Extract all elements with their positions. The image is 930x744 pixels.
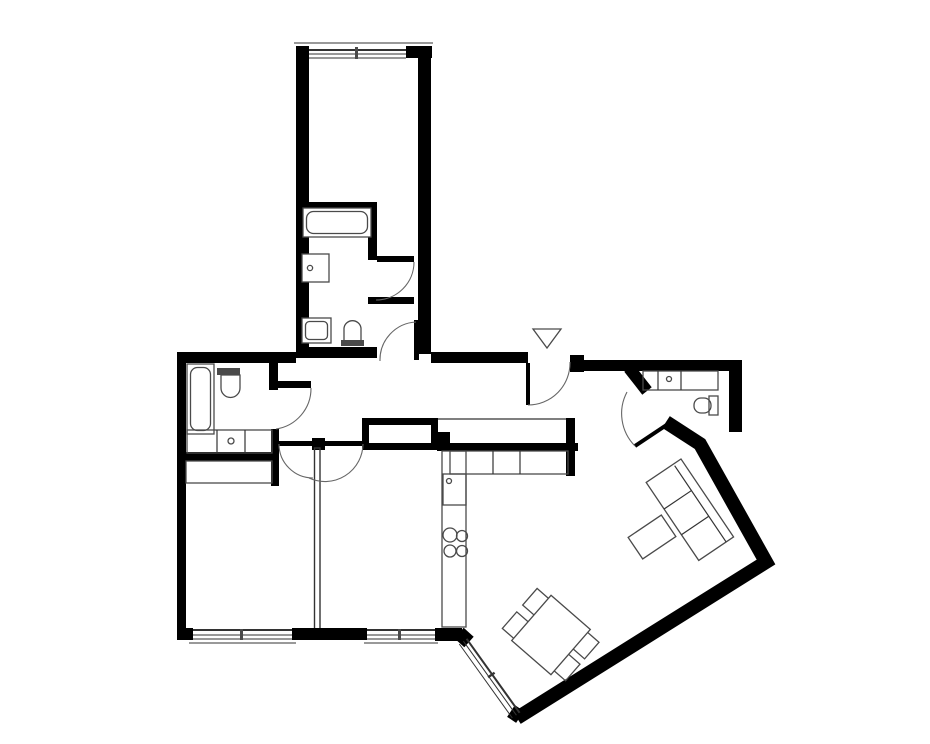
- wall: [570, 355, 584, 372]
- door-swing-arc: [622, 392, 635, 446]
- wall: [729, 360, 742, 432]
- door-swing-arc: [279, 444, 313, 478]
- entrance-arrow-icon: [533, 329, 561, 348]
- kitchen-cabinets: [450, 451, 568, 474]
- door-leaf: [414, 320, 419, 360]
- coffee-table: [628, 515, 676, 559]
- wall: [296, 46, 309, 355]
- door-swing-arc: [276, 388, 311, 429]
- stove-burners: [443, 528, 468, 557]
- wall: [584, 360, 742, 371]
- door-swing-arc: [528, 362, 570, 405]
- window-diagonal: [459, 639, 519, 718]
- wall: [177, 352, 186, 640]
- wall: [418, 58, 431, 354]
- kitchen-counter: [442, 451, 466, 627]
- wall: [431, 352, 528, 363]
- wall: [566, 418, 575, 476]
- wall-angled: [517, 422, 766, 718]
- toilet: [221, 375, 240, 398]
- floor-plan-page: [0, 0, 930, 744]
- bathtub: [303, 208, 371, 237]
- wall: [368, 297, 414, 304]
- room-ensuite-bathroom: [302, 208, 371, 346]
- faucet: [667, 377, 672, 382]
- floor-plan: [0, 0, 930, 744]
- wardrobe: [186, 461, 272, 483]
- wall-box-inner: [369, 425, 431, 443]
- door-leaf: [377, 256, 414, 262]
- wall: [269, 363, 278, 390]
- thin-partition-wall: [315, 448, 321, 630]
- wall: [177, 352, 296, 363]
- wall: [437, 443, 578, 451]
- toilet-tank: [217, 368, 240, 375]
- wall: [177, 628, 193, 640]
- door-leaf: [635, 424, 668, 446]
- door-leaf: [279, 441, 314, 446]
- washing-machine-door: [228, 438, 234, 444]
- door-leaf: [277, 381, 311, 388]
- wall: [406, 46, 432, 58]
- window: [189, 628, 296, 643]
- window: [364, 628, 438, 643]
- wall: [296, 347, 377, 358]
- faucet: [447, 479, 452, 484]
- door-swing-arc: [380, 322, 416, 361]
- kitchen-sink: [443, 474, 466, 505]
- room-right-bathroom: [643, 371, 718, 415]
- toilet: [344, 321, 361, 341]
- walls: [177, 46, 766, 718]
- door-leaf: [324, 441, 363, 446]
- washing-machine: [302, 254, 329, 282]
- door-swing-arc: [376, 262, 414, 300]
- entrance-door-leaf: [526, 363, 530, 405]
- wall: [292, 628, 367, 640]
- toilet-tank: [341, 340, 364, 346]
- room-left-bathroom: [187, 364, 272, 453]
